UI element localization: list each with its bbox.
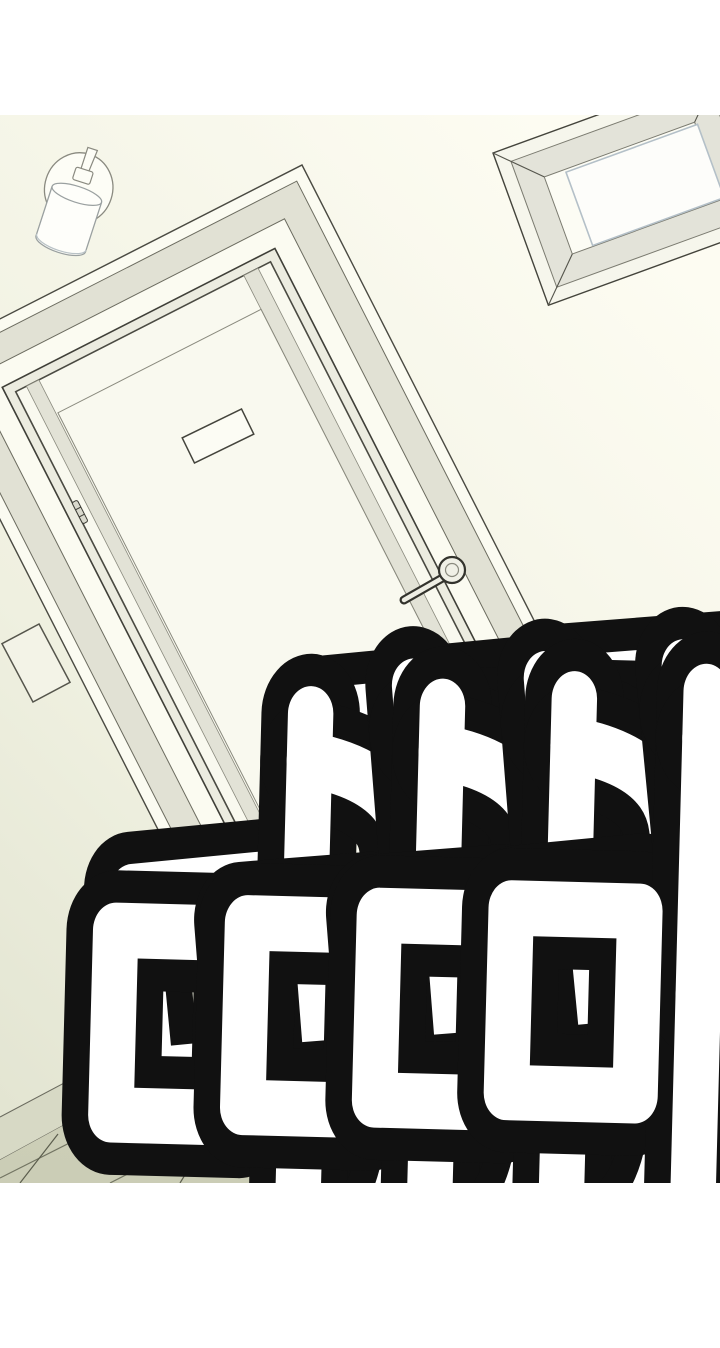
- webtoon-panel: [0, 0, 720, 1348]
- scene-drawing: [0, 0, 720, 1348]
